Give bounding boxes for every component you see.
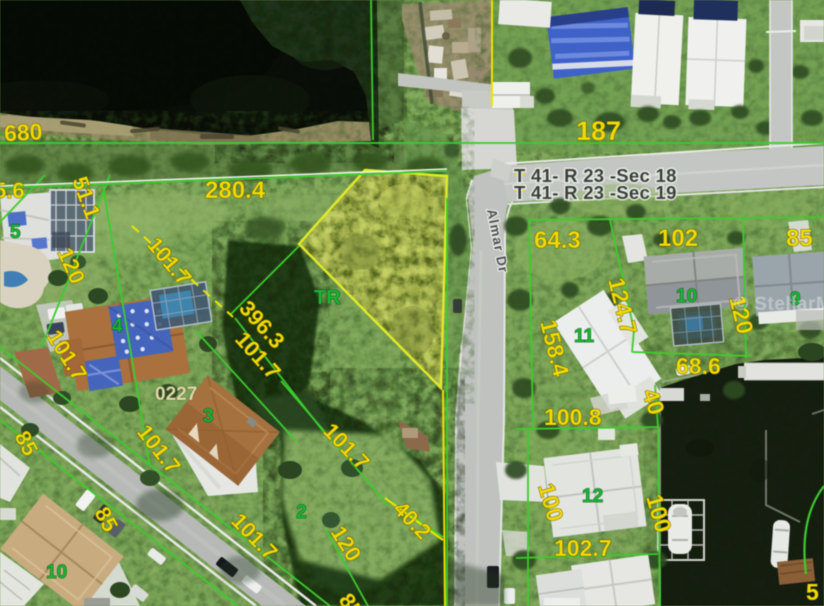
svg-text:5: 5 xyxy=(10,222,21,243)
svg-text:102: 102 xyxy=(658,225,698,252)
svg-text:100.8: 100.8 xyxy=(544,404,602,430)
svg-text:64.3: 64.3 xyxy=(534,227,581,254)
svg-text:680: 680 xyxy=(3,118,43,146)
svg-text:280.4: 280.4 xyxy=(205,177,266,204)
svg-text:11: 11 xyxy=(574,326,595,347)
svg-text:102.7: 102.7 xyxy=(554,535,612,561)
svg-text:85: 85 xyxy=(786,225,813,252)
svg-text:T 41- R 23 -Sec 19: T 41- R 23 -Sec 19 xyxy=(514,182,677,203)
svg-text:TR: TR xyxy=(314,287,341,309)
svg-text:10: 10 xyxy=(46,562,67,583)
svg-text:10: 10 xyxy=(676,286,697,307)
svg-text:12: 12 xyxy=(582,486,603,507)
svg-text:187: 187 xyxy=(576,116,621,146)
svg-text:2: 2 xyxy=(296,502,307,523)
svg-text:4: 4 xyxy=(112,316,123,337)
svg-text:3: 3 xyxy=(203,406,214,427)
svg-text:5.6: 5.6 xyxy=(0,178,25,203)
svg-text:© StellarMLS: © StellarMLS xyxy=(734,294,824,315)
svg-text:68.6: 68.6 xyxy=(676,353,721,379)
svg-text:0227: 0227 xyxy=(155,384,197,405)
svg-text:5: 5 xyxy=(806,579,819,605)
